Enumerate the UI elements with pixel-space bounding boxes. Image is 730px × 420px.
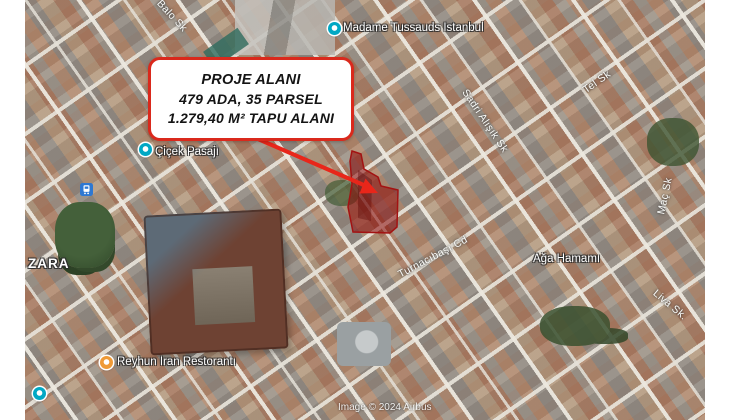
poi-label-cicek-pasaji[interactable]: Çiçek Pasajı	[155, 146, 219, 158]
transit-station-icon[interactable]	[80, 183, 93, 201]
attraction-pin-icon[interactable]	[328, 22, 341, 35]
poi-label-aga-hamami[interactable]: Ağa Hamamı	[533, 253, 600, 265]
callout-parcel-info: 479 ADA, 35 PARSEL	[179, 91, 323, 107]
slide-canvas: Madame Tussauds Istanbul Çiçek Pasajı ZA…	[0, 0, 730, 420]
trees-patch	[540, 306, 610, 346]
domed-building	[337, 322, 391, 366]
trees-patch	[647, 118, 699, 166]
place-pin-icon[interactable]	[33, 387, 46, 400]
poi-label-madame-tussauds[interactable]: Madame Tussauds Istanbul	[343, 22, 484, 34]
imagery-attribution: Image © 2024 Airbus	[338, 402, 432, 413]
callout-area-info: 1.279,40 M² TAPU ALANI	[168, 110, 334, 126]
trees-patch	[325, 180, 359, 206]
poi-label-zara[interactable]: ZARA	[28, 256, 70, 271]
project-callout-box: PROJE ALANI 479 ADA, 35 PARSEL 1.279,40 …	[148, 57, 354, 141]
poi-label-reyhun-iran-restoranti[interactable]: Reyhun Iran Restorantı	[117, 356, 236, 368]
restaurant-pin-icon[interactable]	[100, 356, 113, 369]
camera-pin-icon[interactable]	[139, 143, 152, 156]
callout-title: PROJE ALANI	[201, 72, 300, 88]
large-courtyard-building	[143, 208, 288, 355]
light-building-block	[235, 0, 335, 55]
